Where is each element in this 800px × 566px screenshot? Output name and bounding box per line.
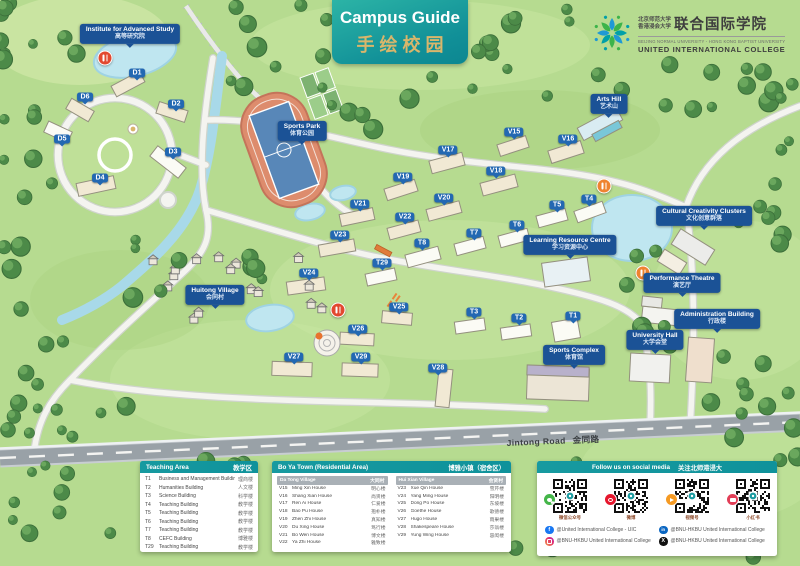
table-row-t4: T4Teaching Building教学楼 <box>140 501 258 510</box>
table-row-v27: V27Hugo House雨果楼 <box>396 516 507 524</box>
qr-code <box>553 479 587 513</box>
account-x: X@BNU-HKBU United International College <box>659 537 769 546</box>
qr-unit-xiaohongshu: 小红书 <box>727 479 770 521</box>
platform-glyph <box>670 498 674 502</box>
qr-code-row: 微信公众号微博视频号小红书 <box>537 473 777 521</box>
account-instagram: @BNU-HKBU United International College <box>545 537 655 546</box>
table-row-v16: V16Shang Xian House尚贤楼 <box>277 492 388 500</box>
table-row-v25: V25Dong Po House东坡楼 <box>396 500 507 508</box>
uic-starburst-icon <box>592 13 632 53</box>
table-row-t29: T29Teaching Building教学楼 <box>140 543 258 552</box>
logo-cn-university-2: 香港浸会大学 <box>638 24 671 30</box>
teaching-area-list: T1Business and Management Building理商楼T2H… <box>140 473 258 552</box>
qr-caption-wechat-channels: 视频号 <box>685 515 698 521</box>
table-row-t3: T3Science Building科学楼 <box>140 492 258 501</box>
table-row-v22: V22Ya Zhi House雅致楼 <box>277 539 388 547</box>
table-row-v23: V23Xue Qin House雪芹楼 <box>396 485 507 493</box>
qr-unit-wechat-channels: 视频号 <box>666 479 709 521</box>
qr-unit-weibo: 微博 <box>605 479 648 521</box>
linkedin-icon: in <box>659 526 668 535</box>
boya-town-header: Bo Ya Town (Residential Area) 博雅小镇（宿舍区） <box>272 461 511 473</box>
logo-en-universities: BEIJING NORMAL UNIVERSITY - HONG KONG BA… <box>638 36 785 44</box>
social-media-panel: Follow us on social media 关注北师港浸大 微信公众号微… <box>537 461 777 556</box>
table-row-v21: V21Bo Wen House博文楼 <box>277 531 388 539</box>
banner-title-en: Campus Guide <box>340 8 460 28</box>
social-media-header: Follow us on social media 关注北师港浸大 <box>537 461 777 473</box>
table-row-t1: T1Business and Management Building理商楼 <box>140 475 258 484</box>
table-row-t2: T2Humanities Building人文楼 <box>140 484 258 493</box>
qr-code <box>675 479 709 513</box>
table-row-v29: V29Yung Wing House容闳楼 <box>396 531 507 539</box>
village-lists: Da Tong Village大同村V15Ming Xin House明心楼V1… <box>272 473 511 547</box>
facebook-icon: f <box>545 526 554 535</box>
village-header-da-tong-village: Da Tong Village大同村 <box>277 476 388 485</box>
boya-town-panel: Bo Ya Town (Residential Area) 博雅小镇（宿舍区） … <box>272 461 511 552</box>
uic-logo: 北京师范大学 香港浸会大学 联合国际学院 BEIJING NORMAL UNIV… <box>592 13 785 54</box>
title-banner: Campus Guide 手绘校园 <box>332 0 468 64</box>
qr-column: 微信公众号 <box>553 479 587 521</box>
instagram-icon <box>545 537 554 546</box>
qr-caption-weibo: 微博 <box>627 515 636 521</box>
table-row-v18: V18Bao Pu House抱朴楼 <box>277 508 388 516</box>
platform-glyph <box>547 498 552 502</box>
village-column-hui-xian-village: Hui Xian Village会贤村V23Xue Qin House雪芹楼V2… <box>396 476 507 547</box>
qr-code <box>614 479 648 513</box>
logo-cn-college: 联合国际学院 <box>674 13 767 34</box>
village-column-da-tong-village: Da Tong Village大同村V15Ming Xin House明心楼V1… <box>277 476 388 547</box>
table-row-t5: T5Teaching Building教学楼 <box>140 509 258 518</box>
table-row-v28: V28Shakespeare House莎翁楼 <box>396 523 507 531</box>
qr-unit-wechat: 微信公众号 <box>544 479 587 521</box>
campus-guide-poster: Campus Guide 手绘校园 北京师范大学 香港浸会大学 联合国际学院 B… <box>0 0 800 566</box>
logo-en-college: UNITED INTERNATIONAL COLLEGE <box>638 45 785 54</box>
platform-glyph <box>730 498 736 502</box>
table-row-v24: V24Yang Ming House阳明楼 <box>396 492 507 500</box>
table-row-v17: V17Ren Ai House仁爱楼 <box>277 500 388 508</box>
account-facebook: f@United International College - UIC <box>545 526 655 535</box>
account-linkedin: in@BNU-HKBU United International College <box>659 526 769 535</box>
qr-column: 微博 <box>614 479 648 521</box>
qr-column: 小红书 <box>736 479 770 521</box>
platform-glyph <box>608 498 614 503</box>
social-accounts: f@United International College - UICin@B… <box>537 521 777 546</box>
table-row-v26: V26Goethe House歌德楼 <box>396 508 507 516</box>
uic-logo-text: 北京师范大学 香港浸会大学 联合国际学院 BEIJING NORMAL UNIV… <box>638 13 785 54</box>
table-row-v15: V15Ming Xin House明心楼 <box>277 485 388 493</box>
table-row-t8: T8CEFC Building博雅楼 <box>140 535 258 544</box>
teaching-area-panel: Teaching Area 教学区 T1Business and Managem… <box>140 461 258 552</box>
table-row-v19: V19Zhen Zhi House真知楼 <box>277 516 388 524</box>
table-row-t7: T7Teaching Building教学楼 <box>140 526 258 535</box>
table-row-t6: T6Teaching Building教学楼 <box>140 518 258 527</box>
village-header-hui-xian-village: Hui Xian Village会贤村 <box>396 476 507 485</box>
qr-code <box>736 479 770 513</box>
qr-caption-wechat: 微信公众号 <box>559 515 581 521</box>
x-icon: X <box>659 537 668 546</box>
qr-caption-xiaohongshu: 小红书 <box>746 515 759 521</box>
banner-title-zh: 手绘校园 <box>357 31 449 57</box>
table-row-v20: V20Du Xing House笃行楼 <box>277 523 388 531</box>
teaching-area-header: Teaching Area 教学区 <box>140 461 258 473</box>
qr-column: 视频号 <box>675 479 709 521</box>
camera-glyph <box>547 539 552 544</box>
